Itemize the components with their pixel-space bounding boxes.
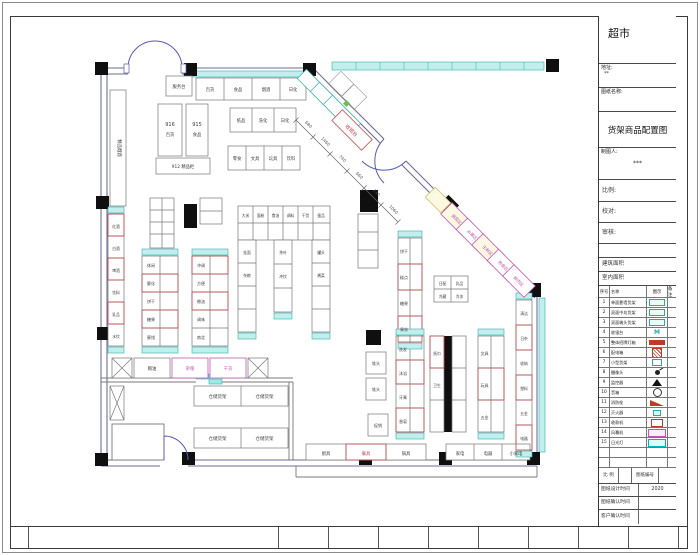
- register-symbol: [651, 419, 663, 427]
- svg-text:糖果: 糖果: [147, 316, 155, 322]
- legend-header-name: 名称: [610, 286, 647, 297]
- strip-cell: [579, 527, 629, 548]
- svg-text:干货: 干货: [302, 213, 310, 218]
- svg-text:电器: 电器: [484, 450, 493, 457]
- legend-row: 7小型货架: [599, 358, 676, 368]
- svg-text:文具: 文具: [251, 155, 260, 162]
- customer-time-label: 客户确认时间: [599, 510, 639, 524]
- svg-text:纸巾: 纸巾: [433, 351, 441, 356]
- svg-text:饮料: 饮料: [287, 155, 296, 162]
- svg-text:五金: 五金: [481, 414, 489, 420]
- design-time-label: 图纸设计时间: [599, 484, 639, 496]
- svg-text:日化: 日化: [289, 86, 298, 93]
- title-block-store-name: 超市: [599, 16, 676, 64]
- strip-cell: [429, 527, 479, 548]
- legend-row: 8摄像头: [599, 368, 676, 378]
- drafter-label: 制图人:: [599, 148, 676, 155]
- storage-rack-label: 仓储货架: [209, 393, 227, 400]
- strip-cell: [479, 527, 529, 548]
- scale-field: 比例:: [599, 180, 676, 202]
- title-block-address: 地址: **: [599, 64, 676, 88]
- speaker-icon: [653, 388, 662, 397]
- title-block: 超市 地址: ** 图纸名称: 货架商品配置图 制图人: *** 比例: 校对:…: [598, 16, 676, 527]
- legend-row: 9监控器: [599, 378, 676, 388]
- air-curtain-symbol: [648, 429, 666, 437]
- svg-text:粮油: 粮油: [148, 365, 157, 372]
- storage-rack-label: 仓储货架: [256, 393, 274, 400]
- customer-time-value: [639, 510, 676, 524]
- svg-text:电器: 电器: [520, 436, 528, 441]
- strip-cell: [279, 527, 329, 548]
- svg-text:卫生: 卫生: [433, 383, 441, 388]
- partition-walls: [101, 378, 537, 477]
- check-field: 校对:: [599, 202, 676, 223]
- svg-text:食品: 食品: [193, 131, 202, 138]
- svg-text:南北: 南北: [197, 334, 205, 340]
- svg-text:乳品: 乳品: [456, 281, 464, 286]
- confirm-time-value: [639, 497, 676, 509]
- title-block-drawing-name: 图纸名称:: [599, 88, 676, 112]
- strip-cell: [629, 527, 679, 548]
- legend-row: 15日光灯: [599, 438, 676, 448]
- svg-text:啤酒: 啤酒: [112, 268, 120, 273]
- footer-scale-value: [619, 468, 632, 483]
- footer-scale-row: 比 例 图纸编号: [599, 468, 676, 484]
- lightbox-symbol: [649, 340, 665, 345]
- address-value: **: [599, 71, 676, 77]
- svg-text:杂粮: 杂粮: [186, 365, 195, 372]
- extinguisher-icon: [653, 410, 661, 416]
- svg-text:烟酒: 烟酒: [262, 86, 271, 93]
- legend-row: [599, 458, 676, 468]
- strip-cell: [29, 527, 279, 548]
- legend-row: 4收银台M: [599, 328, 676, 338]
- floor-plan: 收银台 蔬菜区 水果区 生鲜区 熟食区 鲜肉区 680 1460 740: [0, 0, 700, 555]
- footer-number-value: [659, 468, 676, 483]
- dim-value: 660: [355, 171, 364, 180]
- svg-text:乳品: 乳品: [112, 312, 120, 317]
- strip-cell: [379, 527, 429, 548]
- title-block-drafter: 制图人: ***: [599, 148, 676, 180]
- svg-text:冷冻: 冷冻: [456, 294, 464, 299]
- drafter-value: ***: [599, 155, 676, 167]
- svg-text:塑料: 塑料: [520, 386, 528, 391]
- svg-text:糖果: 糖果: [400, 300, 408, 306]
- indoor-area-field: 室内面积: [599, 272, 676, 286]
- svg-text:蜜饯: 蜜饯: [147, 334, 155, 340]
- office-room: [112, 424, 164, 460]
- svg-text:促销: 促销: [374, 422, 382, 428]
- review-field: 审核:: [599, 223, 676, 244]
- legend-row: 2双面中岛货架: [599, 308, 676, 318]
- svg-text:蛋品: 蛋品: [317, 213, 325, 218]
- svg-text:日化: 日化: [281, 117, 290, 124]
- drawing-sheet: 收银台 蔬菜区 水果区 生鲜区 熟食区 鲜肉区 680 1460 740: [0, 0, 700, 555]
- svg-text:糕点: 糕点: [400, 274, 408, 280]
- svg-text:916: 916: [165, 122, 175, 128]
- svg-text:方便: 方便: [197, 280, 205, 286]
- drawing-name-label: 图纸名称:: [599, 88, 676, 95]
- svg-text:五金: 五金: [520, 411, 528, 416]
- legend-row: 10音箱: [599, 388, 676, 398]
- svg-text:915: 915: [192, 122, 202, 128]
- svg-text:香皂: 香皂: [399, 418, 407, 424]
- empty-field: [599, 244, 676, 258]
- svg-text:家电: 家电: [456, 450, 465, 457]
- customer-time-row: 客户确认时间: [599, 510, 676, 524]
- svg-text:日杂: 日杂: [520, 336, 528, 341]
- svg-text:堆头: 堆头: [372, 386, 380, 392]
- power-box-symbol: [652, 348, 662, 357]
- strip-cell: [529, 527, 579, 548]
- svg-text:挂面: 挂面: [243, 250, 251, 255]
- svg-text:饼干: 饼干: [147, 298, 155, 304]
- fire-hydrant-icon: [650, 400, 664, 406]
- svg-text:饼干: 饼干: [400, 248, 408, 254]
- svg-text:冲调: 冲调: [197, 262, 205, 268]
- checkout-area: 收银台: [297, 69, 372, 150]
- svg-text:百货: 百货: [166, 131, 175, 138]
- store-name: 超市: [599, 16, 676, 41]
- legend-row: 12灭火器: [599, 408, 676, 418]
- legend-header-remark: 备注: [668, 286, 676, 297]
- svg-text:调味: 调味: [197, 316, 205, 322]
- title-block-drawing-title: 货架商品配置图: [599, 112, 676, 148]
- svg-text:牙膏: 牙膏: [399, 394, 407, 400]
- legend-row: 13收款机: [599, 418, 676, 428]
- confirm-time-label: 图纸确认时间: [599, 497, 639, 509]
- drawing-title: 货架商品配置图: [608, 124, 668, 136]
- svg-text:休闲: 休闲: [147, 262, 155, 268]
- storage-rack-label: 仓储货架: [256, 435, 274, 442]
- svg-text:果冻: 果冻: [400, 326, 408, 332]
- legend-header-no: 序号: [599, 286, 610, 297]
- svg-text:零食: 零食: [233, 155, 242, 162]
- legend-header-symbol: 图示: [647, 286, 668, 297]
- legend-row: 1单面靠墙货架: [599, 298, 676, 308]
- island-shelf-symbol: [649, 309, 665, 316]
- fluorescent-symbol: [648, 439, 666, 447]
- footer-number-label: 图纸编号: [632, 468, 659, 483]
- svg-text:百货: 百货: [206, 86, 215, 93]
- legend-header: 序号 名称 图示 备注: [599, 286, 676, 298]
- svg-text:文具: 文具: [481, 350, 489, 356]
- legend-row: 3双面端头货架: [599, 318, 676, 328]
- svg-text:红酒: 红酒: [112, 224, 120, 229]
- svg-text:水饮: 水饮: [112, 334, 120, 339]
- svg-text:沐浴: 沐浴: [399, 370, 407, 376]
- svg-text:干货: 干货: [224, 365, 233, 372]
- svg-text:洗发: 洗发: [399, 346, 407, 352]
- small-shelf-symbol: [652, 359, 662, 366]
- svg-text:膨化: 膨化: [147, 280, 155, 286]
- svg-text:日配: 日配: [439, 281, 447, 286]
- strip-cell: [679, 527, 687, 548]
- svg-text:玩具: 玩具: [269, 156, 278, 162]
- design-time-value: 2020: [639, 484, 676, 496]
- svg-text:食品: 食品: [234, 86, 243, 93]
- svg-text:食油: 食油: [272, 213, 280, 218]
- service-desk-label: 服务台: [173, 83, 186, 90]
- svg-text:堆头: 堆头: [372, 360, 380, 366]
- svg-text:锅具: 锅具: [402, 450, 411, 457]
- svg-text:小家电: 小家电: [510, 450, 524, 457]
- svg-text:调料: 调料: [287, 213, 295, 218]
- legend-row: 6配电箱: [599, 348, 676, 358]
- diagonal-entry-door: [362, 139, 406, 183]
- svg-text:面粉: 面粉: [257, 213, 265, 218]
- svg-text:茶叶: 茶叶: [279, 250, 287, 255]
- strip-cell: [329, 527, 379, 548]
- svg-text:饮料: 饮料: [112, 290, 120, 295]
- camera-icon: [655, 370, 660, 375]
- footer-scale-label: 比 例: [599, 468, 619, 483]
- svg-text:洗化: 洗化: [259, 117, 268, 124]
- svg-text:粮油: 粮油: [197, 298, 205, 304]
- building-area-field: 建筑面积: [599, 258, 676, 272]
- box912-label: 912 精品柜: [172, 163, 195, 170]
- svg-text:罐头: 罐头: [317, 250, 325, 255]
- legend-row: 5整体招牌灯箱: [599, 338, 676, 348]
- svg-text:白酒: 白酒: [112, 246, 120, 251]
- strip-cell: [11, 527, 29, 548]
- design-time-row: 图纸设计时间 2020: [599, 484, 676, 497]
- svg-text:玩具: 玩具: [481, 382, 489, 388]
- svg-text:餐具: 餐具: [362, 450, 371, 457]
- wall-shelf-symbol: [649, 299, 665, 306]
- legend-row: 11消防栓: [599, 398, 676, 408]
- address-label: 地址:: [599, 64, 676, 71]
- svg-text:冲饮: 冲饮: [279, 274, 287, 279]
- end-shelf-symbol: [649, 319, 665, 326]
- confirm-time-row: 图纸确认时间: [599, 497, 676, 510]
- svg-text:收纳: 收纳: [520, 361, 528, 366]
- legend-row: [599, 448, 676, 458]
- svg-text:冷藏: 冷藏: [439, 294, 447, 299]
- svg-text:纸品: 纸品: [237, 117, 246, 124]
- checkout-symbol: M: [654, 329, 660, 336]
- svg-text:酱菜: 酱菜: [317, 273, 325, 278]
- storage-rack-label: 仓储货架: [209, 435, 227, 442]
- svg-text:清洁: 清洁: [520, 311, 528, 316]
- svg-text:大米: 大米: [242, 213, 250, 218]
- dim-value: 680: [304, 120, 313, 129]
- bottom-strip: [10, 527, 688, 549]
- svg-text:厨具: 厨具: [322, 451, 331, 457]
- monitor-icon: [652, 379, 662, 386]
- left-case-label: 精品烟酒: [116, 139, 123, 157]
- svg-text:杂粮: 杂粮: [243, 273, 251, 278]
- dim-value: 740: [338, 154, 347, 163]
- legend-row: 14风幕机: [599, 428, 676, 438]
